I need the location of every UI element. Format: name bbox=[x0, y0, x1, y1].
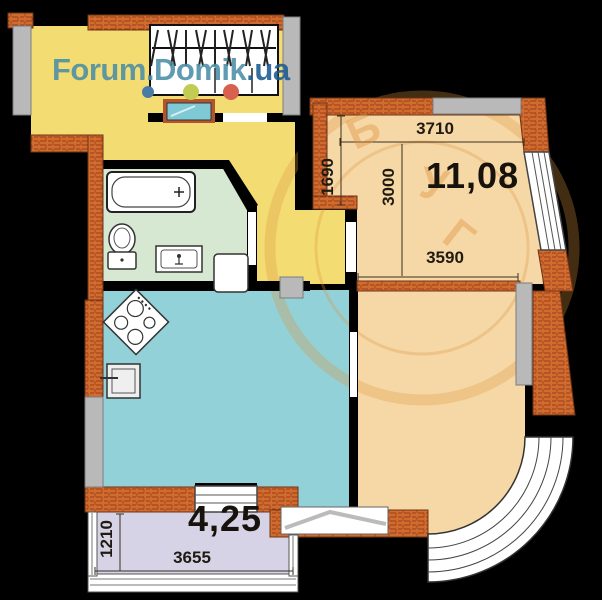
dim-bedroom-bottom: 3590 bbox=[410, 249, 480, 266]
site-watermark-suffix: .ua bbox=[246, 52, 289, 87]
room-living bbox=[358, 291, 525, 534]
sink-vanity-icon bbox=[156, 246, 202, 272]
door-bathroom bbox=[248, 212, 256, 265]
living-room-window bbox=[281, 507, 388, 534]
door-living bbox=[350, 332, 357, 397]
dim-balcony-left: 1210 bbox=[98, 507, 116, 571]
dim-bedroom-height: 3000 bbox=[380, 155, 398, 219]
dim-bedroom-left: 1690 bbox=[319, 145, 337, 209]
floor-plan: Б У Г 3710 1690 3000 11,08 3590 4,25 121… bbox=[0, 0, 602, 600]
washing-machine-icon bbox=[214, 254, 248, 292]
dim-balcony-bottom: 3655 bbox=[157, 549, 227, 566]
dim-bedroom-top: 3710 bbox=[400, 120, 470, 137]
area-label-bedroom: 11,08 bbox=[426, 158, 519, 194]
wall-niche-window bbox=[163, 99, 215, 123]
site-watermark-prefix: Forum.Domik bbox=[52, 52, 246, 87]
door-hallway-inner bbox=[223, 113, 267, 122]
site-watermark: Forum.Domik.ua bbox=[52, 52, 290, 88]
toilet-icon bbox=[108, 224, 136, 269]
floor-plan-drawing bbox=[0, 0, 602, 600]
area-label-balcony: 4,25 bbox=[188, 501, 262, 537]
door-bedroom bbox=[346, 222, 356, 272]
bathtub-icon bbox=[107, 172, 195, 212]
